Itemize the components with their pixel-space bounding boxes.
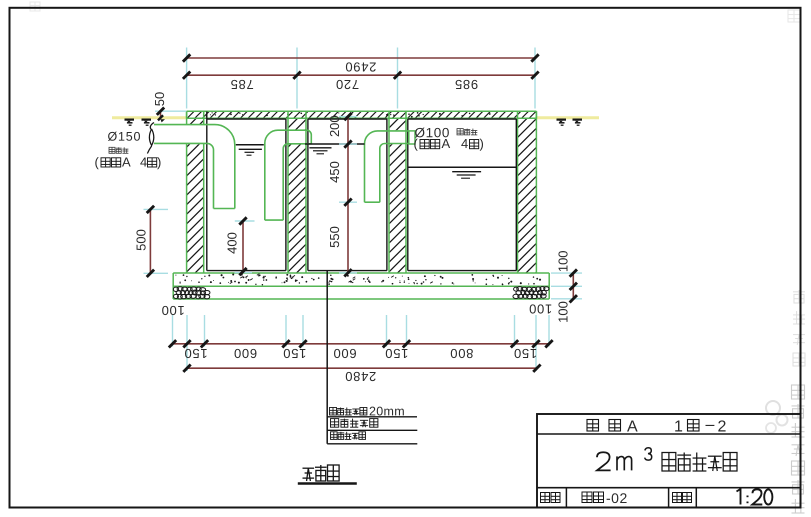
- svg-text:600: 600: [233, 346, 257, 361]
- svg-text:Ø150: Ø150: [107, 130, 141, 144]
- svg-text:1: 1: [674, 419, 683, 436]
- svg-text:985: 985: [454, 77, 478, 92]
- svg-text:A: A: [627, 419, 638, 436]
- svg-text:400: 400: [224, 232, 239, 254]
- svg-text:4: 4: [140, 155, 147, 170]
- svg-text:2490: 2490: [345, 59, 377, 74]
- svg-text:150: 150: [385, 346, 409, 361]
- svg-text:150: 150: [283, 346, 307, 361]
- svg-text:450: 450: [327, 161, 342, 183]
- svg-text:A: A: [122, 155, 131, 170]
- svg-text:-02: -02: [606, 490, 628, 506]
- svg-text:100: 100: [528, 302, 552, 317]
- svg-text:800: 800: [450, 346, 474, 361]
- svg-text:500: 500: [133, 229, 148, 251]
- svg-text:100: 100: [161, 303, 185, 318]
- svg-text:2: 2: [717, 419, 726, 436]
- svg-text:720: 720: [335, 77, 359, 92]
- svg-text:): ): [157, 155, 161, 170]
- svg-text:100: 100: [555, 250, 570, 272]
- svg-text:20mm: 20mm: [369, 404, 405, 418]
- svg-text:(: (: [413, 136, 418, 151]
- svg-text:–: –: [705, 417, 714, 434]
- svg-text:785: 785: [230, 77, 254, 92]
- svg-text:100: 100: [555, 301, 570, 323]
- svg-text:50: 50: [152, 92, 167, 106]
- svg-text:(: (: [94, 155, 99, 170]
- svg-text:200: 200: [327, 115, 342, 137]
- svg-text:): ): [479, 136, 483, 151]
- svg-text:550: 550: [327, 226, 342, 248]
- svg-text:4: 4: [461, 136, 468, 151]
- svg-text:A: A: [441, 136, 450, 151]
- svg-text:2480: 2480: [345, 369, 377, 384]
- svg-text:150: 150: [513, 346, 537, 361]
- svg-text:150: 150: [184, 346, 208, 361]
- svg-text:600: 600: [333, 346, 357, 361]
